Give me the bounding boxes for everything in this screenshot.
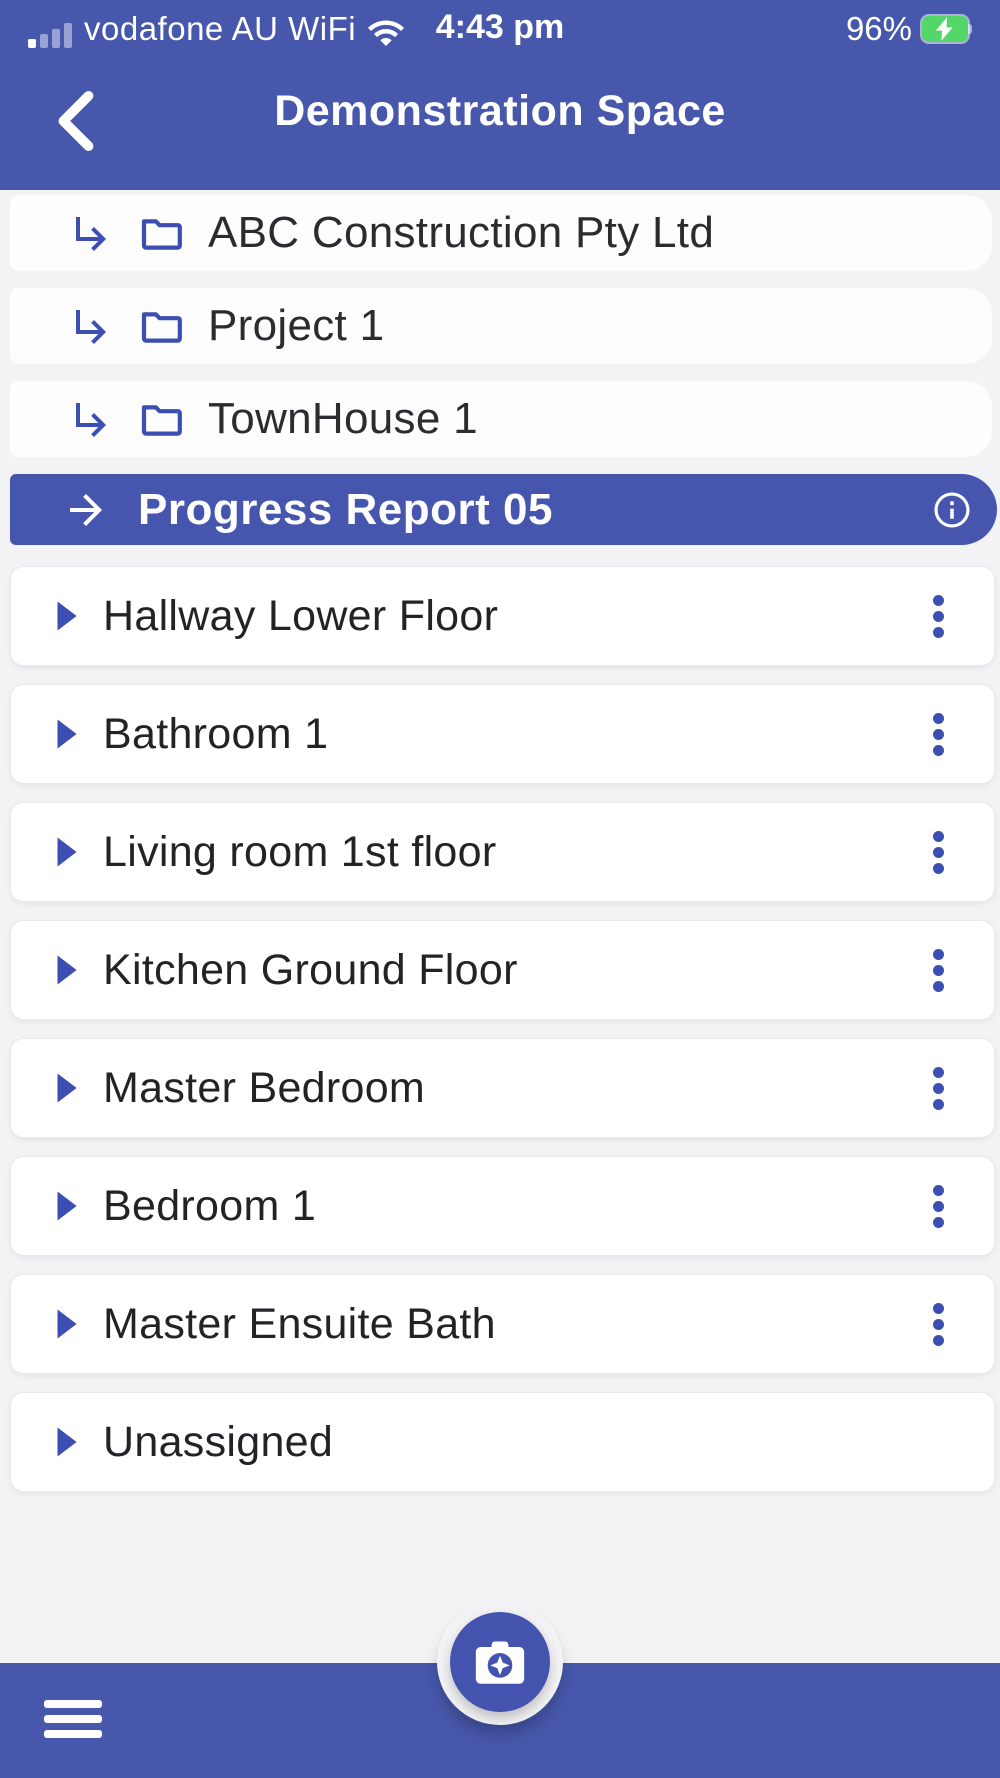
nav-bar: Demonstration Space bbox=[0, 52, 1000, 190]
tree-item-project-1[interactable]: Project 1 bbox=[10, 288, 992, 364]
arrow-right-icon bbox=[62, 486, 110, 534]
room-card-bathroom-1[interactable]: Bathroom 1 bbox=[10, 684, 995, 784]
play-chevron-icon[interactable] bbox=[51, 953, 81, 987]
room-label: Kitchen Ground Floor bbox=[103, 946, 908, 995]
tree-item-townhouse-1[interactable]: TownHouse 1 bbox=[10, 381, 992, 457]
subdirectory-arrow-right-icon bbox=[68, 395, 116, 443]
status-bar: vodafone AU WiFi 4:43 pm 96% bbox=[0, 0, 1000, 52]
camera-sparkle-icon bbox=[471, 1633, 529, 1691]
room-card-living-room-1st-floor[interactable]: Living room 1st floor bbox=[10, 802, 995, 902]
page-title: Demonstration Space bbox=[120, 52, 880, 170]
tree-item-label: ABC Construction Pty Ltd bbox=[208, 208, 714, 258]
play-chevron-icon[interactable] bbox=[51, 1307, 81, 1341]
wifi-icon bbox=[368, 20, 404, 48]
room-card-bedroom-1[interactable]: Bedroom 1 bbox=[10, 1156, 995, 1256]
room-label: Bathroom 1 bbox=[103, 710, 908, 759]
room-label: Master Ensuite Bath bbox=[103, 1300, 908, 1349]
folder-icon bbox=[134, 395, 188, 443]
room-card-master-bedroom[interactable]: Master Bedroom bbox=[10, 1038, 995, 1138]
room-card-hallway-lower-floor[interactable]: Hallway Lower Floor bbox=[10, 566, 995, 666]
kebab-menu-icon[interactable] bbox=[908, 935, 968, 1005]
play-chevron-icon[interactable] bbox=[51, 599, 81, 633]
room-label: Hallway Lower Floor bbox=[103, 592, 908, 641]
status-right: 96% bbox=[846, 10, 972, 48]
tree-item-label: TownHouse 1 bbox=[208, 394, 478, 444]
room-label: Master Bedroom bbox=[103, 1064, 908, 1113]
battery-percent-label: 96% bbox=[846, 10, 912, 48]
kebab-menu-icon[interactable] bbox=[908, 581, 968, 651]
kebab-menu-icon[interactable] bbox=[908, 1171, 968, 1241]
info-icon[interactable] bbox=[931, 489, 973, 531]
play-chevron-icon[interactable] bbox=[51, 1071, 81, 1105]
app-header: vodafone AU WiFi 4:43 pm 96% bbox=[0, 0, 1000, 190]
chevron-left-icon bbox=[53, 90, 97, 152]
back-button[interactable] bbox=[40, 86, 110, 156]
room-label: Living room 1st floor bbox=[103, 828, 908, 877]
tree-item-abc-construction[interactable]: ABC Construction Pty Ltd bbox=[10, 195, 992, 271]
subdirectory-arrow-right-icon bbox=[68, 209, 116, 257]
room-card-kitchen-ground-floor[interactable]: Kitchen Ground Floor bbox=[10, 920, 995, 1020]
room-label: Unassigned bbox=[103, 1418, 908, 1467]
play-chevron-icon[interactable] bbox=[51, 1425, 81, 1459]
play-chevron-icon[interactable] bbox=[51, 835, 81, 869]
tree-item-label: Project 1 bbox=[208, 301, 384, 351]
hamburger-menu-button[interactable] bbox=[44, 1700, 102, 1738]
selected-item-label: Progress Report 05 bbox=[138, 485, 931, 535]
kebab-menu-icon[interactable] bbox=[908, 699, 968, 769]
room-card-master-ensuite-bath[interactable]: Master Ensuite Bath bbox=[10, 1274, 995, 1374]
folder-icon bbox=[134, 302, 188, 350]
subdirectory-arrow-right-icon bbox=[68, 302, 116, 350]
battery-charging-icon bbox=[922, 16, 972, 42]
room-card-unassigned[interactable]: Unassigned bbox=[10, 1392, 995, 1492]
tree-item-selected-progress-report[interactable]: Progress Report 05 bbox=[10, 474, 997, 545]
folder-icon bbox=[134, 209, 188, 257]
play-chevron-icon[interactable] bbox=[51, 1189, 81, 1223]
app-screen: vodafone AU WiFi 4:43 pm 96% bbox=[0, 0, 1000, 1778]
kebab-menu-icon[interactable] bbox=[908, 1053, 968, 1123]
carrier-label: vodafone AU WiFi bbox=[84, 10, 356, 48]
cell-signal-icon bbox=[28, 22, 72, 48]
kebab-menu-icon[interactable] bbox=[908, 817, 968, 887]
content-area: ABC Construction Pty Ltd Project 1 TownH… bbox=[0, 190, 1000, 1510]
kebab-menu-icon[interactable] bbox=[908, 1289, 968, 1359]
room-label: Bedroom 1 bbox=[103, 1182, 908, 1231]
hamburger-menu-icon bbox=[44, 1700, 102, 1708]
camera-capture-button[interactable] bbox=[450, 1612, 550, 1712]
play-chevron-icon[interactable] bbox=[51, 717, 81, 751]
status-left: vodafone AU WiFi bbox=[28, 10, 404, 48]
